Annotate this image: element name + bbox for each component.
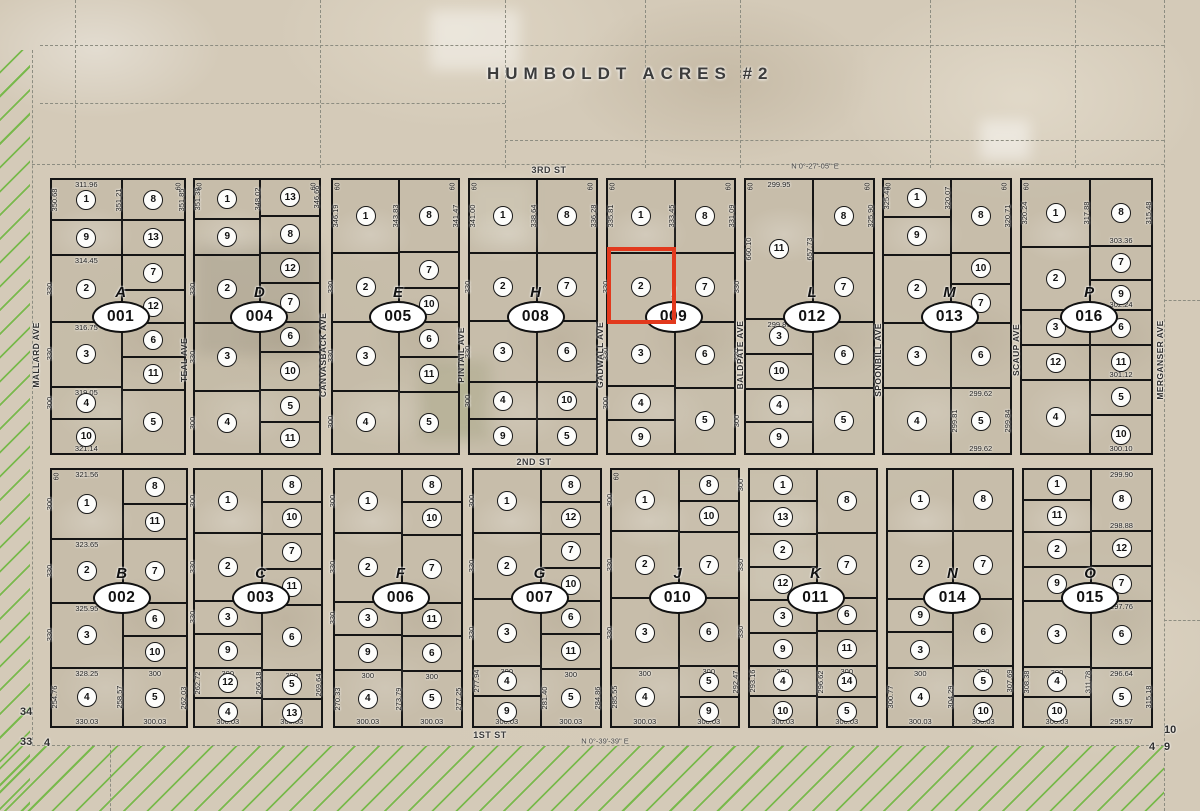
lot-J4[interactable]: 4300300.03285.55 <box>612 667 678 727</box>
dimension-label: 346.19 <box>331 205 340 228</box>
dimension-label: 320.71 <box>1003 204 1012 227</box>
lot-C13[interactable]: 13300.03 <box>263 698 321 726</box>
lot-number-badge: 1 <box>217 189 237 209</box>
dimension-label: 299.84 <box>1003 410 1012 433</box>
avenue-label-canvasback: CANVASBACK AVE <box>318 313 328 397</box>
lot-number-badge: 6 <box>280 327 300 347</box>
dimension-label: 660.10 <box>744 237 753 260</box>
dimension-label: 298.88 <box>1110 521 1133 530</box>
block-letter-P: P <box>1084 284 1094 301</box>
lot-number-badge: 8 <box>1111 203 1131 223</box>
dimension-label: 330 <box>188 611 197 624</box>
lot-number-badge: 9 <box>699 702 719 722</box>
lot-F9[interactable]: 9 <box>335 634 401 669</box>
lot-O12[interactable]: 12 <box>1092 530 1151 565</box>
parcel-line <box>740 0 741 168</box>
block-id-oval-004: 004 <box>230 301 288 333</box>
lot-O2[interactable]: 2 <box>1024 531 1090 566</box>
block-letter-L: L <box>807 284 816 301</box>
dimension-label: 295.57 <box>1110 717 1133 726</box>
lot-number-badge: 4 <box>356 412 376 432</box>
lot-H8[interactable]: 8336.28 <box>538 180 596 252</box>
dimension-label: 299.62 <box>969 389 992 398</box>
street-width-label: 60 <box>613 473 620 481</box>
block-letter-K: K <box>810 565 821 582</box>
lot-B8[interactable]: 8 <box>124 470 186 503</box>
dimension-label: 300 <box>326 416 335 429</box>
lot-B5[interactable]: 5300300.03262.03 <box>124 667 186 726</box>
dimension-label: 350.68 <box>50 188 59 211</box>
lot-A7[interactable]: 7 <box>123 254 184 289</box>
section-corner-number: 34 <box>20 706 32 718</box>
lot-M4[interactable]: 4 <box>884 387 950 453</box>
lot-K9[interactable]: 9 <box>750 632 816 665</box>
dimension-label: 273.79 <box>394 687 403 710</box>
parcel-line <box>40 103 505 104</box>
lot-number-badge: 2 <box>217 279 237 299</box>
lot-D3[interactable]: 3330 <box>195 322 259 390</box>
lot-number-badge: 1 <box>77 494 97 514</box>
lot-L11[interactable]: 11299.95660.10657.73 <box>746 180 812 318</box>
lot-H1[interactable]: 1341.00338.64 <box>470 180 536 252</box>
block-id-oval-003: 003 <box>232 582 290 614</box>
lot-E5[interactable]: 5 <box>400 391 458 453</box>
lot-number-badge: 1 <box>773 475 793 495</box>
lot-P2[interactable]: 2 <box>1022 246 1089 309</box>
lot-number-badge: 3 <box>907 346 927 366</box>
lot-C10[interactable]: 10 <box>263 501 321 534</box>
street-line-3rd <box>32 164 1164 165</box>
parcel-line <box>1164 620 1200 621</box>
lot-number-badge: 3 <box>358 608 378 628</box>
dimension-label: 330 <box>328 561 337 574</box>
lot-D4[interactable]: 4300 <box>195 390 259 453</box>
lot-O5[interactable]: 5296.64295.57315.18 <box>1092 667 1151 726</box>
lot-number-badge: 11 <box>1111 352 1131 372</box>
lot-number-badge: 10 <box>1047 702 1067 722</box>
lot-number-badge: 7 <box>557 277 577 297</box>
lot-C4[interactable]: 4300.03 <box>195 697 261 726</box>
lot-number-badge: 6 <box>834 345 854 365</box>
dimension-label: 343.83 <box>391 205 400 228</box>
lot-G12[interactable]: 12 <box>542 501 600 534</box>
lot-P4[interactable]: 4 <box>1022 379 1089 453</box>
dimension-label: 341.00 <box>468 204 477 227</box>
lot-O10[interactable]: 10300.03 <box>1024 696 1090 726</box>
lot-number-badge: 6 <box>971 346 991 366</box>
parcel-line <box>1075 0 1076 168</box>
lot-number-badge: 1 <box>635 490 655 510</box>
street-width-label: 60 <box>726 183 733 191</box>
block-id-oval-005: 005 <box>369 301 427 333</box>
lot-number-badge: 2 <box>497 556 517 576</box>
parcel-line <box>320 0 321 168</box>
lot-number-badge: 6 <box>282 627 302 647</box>
lot-number-badge: 13 <box>280 187 300 207</box>
lot-D1[interactable]: 1351.38348.02 <box>195 180 259 218</box>
lot-K1[interactable]: 1 <box>750 470 816 500</box>
lot-L9[interactable]: 9 <box>746 421 812 453</box>
street-width-label: 60 <box>53 473 60 481</box>
lot-number-badge: 6 <box>695 345 715 365</box>
block-id-oval-015: 015 <box>1061 582 1119 614</box>
lot-B11[interactable]: 11 <box>124 503 186 538</box>
dimension-label: 330 <box>736 559 745 572</box>
block-id-oval-013: 013 <box>921 301 979 333</box>
lot-D8[interactable]: 8 <box>261 215 319 252</box>
lot-A1[interactable]: 1311.96350.68351.21 <box>52 180 121 219</box>
lot-A4[interactable]: 4319.05300 <box>52 386 121 418</box>
dimension-label: 311.78 <box>1083 671 1092 693</box>
lot-C5[interactable]: 5300269.64 <box>263 669 321 698</box>
lot-number-badge: 6 <box>1112 625 1132 645</box>
lot-number-badge: 3 <box>635 623 655 643</box>
lot-F8[interactable]: 8 <box>403 470 461 501</box>
lot-A5[interactable]: 5 <box>123 389 184 453</box>
lot-number-badge: 4 <box>76 393 96 413</box>
lot-F10[interactable]: 10 <box>403 501 461 534</box>
lot-I4[interactable]: 4300 <box>608 385 674 419</box>
lot-G5[interactable]: 5300300.03281.40284.86 <box>542 668 600 726</box>
lot-number-badge: 9 <box>76 228 96 248</box>
dimension-label: 300.03 <box>356 717 379 726</box>
dimension-label: 330 <box>45 564 54 577</box>
dimension-label: 266.18 <box>254 671 263 694</box>
dimension-label: 320.24 <box>1020 202 1029 225</box>
lot-number-badge: 3 <box>631 344 651 364</box>
lot-I9[interactable]: 9 <box>608 419 674 453</box>
lot-P8[interactable]: 8303.36315.48 <box>1091 180 1151 245</box>
dimension-label: 300.77 <box>886 686 895 709</box>
dimension-label: 300 <box>463 394 472 407</box>
lot-number-badge: 11 <box>419 364 439 384</box>
lot-K4[interactable]: 4300293.16 <box>750 665 816 695</box>
lot-F4[interactable]: 4300300.03270.33273.79 <box>335 669 401 726</box>
block-letter-A: A <box>115 284 126 301</box>
lot-I1[interactable]: 1335.81333.45 <box>608 180 674 252</box>
lot-C7[interactable]: 7 <box>263 533 321 568</box>
lot-A10[interactable]: 10321.14 <box>52 418 121 453</box>
lot-N10[interactable]: 10300.03 <box>954 695 1012 726</box>
dimension-label: 300 <box>601 397 610 410</box>
lot-number-badge: 3 <box>773 607 793 627</box>
lot-number-badge: 10 <box>282 508 302 528</box>
lot-number-badge: 11 <box>143 364 163 384</box>
lot-A11[interactable]: 11 <box>123 356 184 389</box>
lot-number-badge: 6 <box>143 330 163 350</box>
lot-number-badge: 4 <box>773 671 793 691</box>
lot-L4[interactable]: 4 <box>746 388 812 420</box>
lot-number-badge: 11 <box>1047 506 1067 526</box>
lot-M9[interactable]: 9 <box>884 216 950 254</box>
lot-E11[interactable]: 11 <box>400 356 458 391</box>
block-K-011: 113212394300293.1610300.038761114300296.… <box>748 468 878 728</box>
dimension-label: 300 <box>736 478 745 491</box>
lot-number-badge: 9 <box>1111 285 1131 305</box>
lot-L10[interactable]: 10 <box>746 353 812 388</box>
lot-number-badge: 5 <box>837 702 857 722</box>
lot-number-badge: 5 <box>280 396 300 416</box>
dimension-label: 304.29 <box>945 686 954 709</box>
lot-number-badge: 4 <box>497 671 517 691</box>
dimension-label: 300.03 <box>143 717 166 726</box>
lot-C6[interactable]: 6 <box>263 604 321 670</box>
lot-G7[interactable]: 7 <box>542 533 600 567</box>
dimension-label: 320.07 <box>943 186 952 209</box>
lot-D12[interactable]: 12 <box>261 252 319 282</box>
lot-A13[interactable]: 13 <box>123 219 184 254</box>
lot-number-badge: 12 <box>218 673 238 693</box>
lot-A9[interactable]: 9 <box>52 219 121 254</box>
lot-N5[interactable]: 5300307.69 <box>954 665 1012 696</box>
section-corner-number: 10 <box>1164 724 1176 736</box>
dimension-label: 300 <box>564 670 577 679</box>
lot-number-badge: 4 <box>217 413 237 433</box>
dimension-label: 299.90 <box>1110 470 1133 479</box>
block-letter-J: J <box>673 565 681 582</box>
lot-number-badge: 6 <box>699 622 719 642</box>
street-width-label: 60 <box>334 183 341 191</box>
lot-M6[interactable]: 6 <box>952 322 1010 388</box>
avenue-label-spoonbill: SPOONBILL AVE <box>873 323 883 397</box>
lot-number-badge: 8 <box>561 475 581 495</box>
lot-K11[interactable]: 11 <box>818 630 876 665</box>
lot-number-badge: 1 <box>218 491 238 511</box>
lot-E7[interactable]: 7 <box>400 251 458 287</box>
lot-G1[interactable]: 1300 <box>474 470 540 532</box>
dimension-label: 315.18 <box>1144 686 1153 709</box>
lot-L5[interactable]: 5 <box>814 387 873 453</box>
dimension-label: 330 <box>45 348 54 361</box>
lot-N4[interactable]: 4300300.03300.77304.29 <box>888 667 952 726</box>
avenue-label-pintail: PINTAIL AVE <box>456 327 466 383</box>
lot-L8[interactable]: 8325.90 <box>814 180 873 252</box>
lot-number-badge: 3 <box>769 326 789 346</box>
lot-C12[interactable]: 12300262.72266.18 <box>195 667 261 697</box>
parcel-line <box>505 140 1164 141</box>
lot-P11[interactable]: 11301.12 <box>1091 344 1151 379</box>
lot-number-badge: 2 <box>635 555 655 575</box>
lot-P5[interactable]: 5 <box>1091 379 1151 415</box>
dimension-label: 351.38 <box>193 188 202 211</box>
lot-K14[interactable]: 14300296.62 <box>818 665 876 695</box>
dimension-label: 300 <box>45 497 54 510</box>
lot-G8[interactable]: 8 <box>542 470 600 501</box>
lot-J5[interactable]: 5300292.47 <box>680 665 738 695</box>
dimension-label: 321.56 <box>75 470 98 479</box>
lot-P7[interactable]: 7 <box>1091 245 1151 278</box>
lot-C9[interactable]: 9 <box>195 633 261 667</box>
lot-D11[interactable]: 11 <box>261 421 319 453</box>
dimension-label: 300 <box>425 672 438 681</box>
parcel-line <box>1164 300 1200 301</box>
lot-D10[interactable]: 10 <box>261 351 319 389</box>
lot-H4[interactable]: 4300 <box>470 381 536 417</box>
dimension-label: 300.03 <box>909 717 932 726</box>
lot-number-badge: 5 <box>695 411 715 431</box>
lot-number-badge: 5 <box>973 671 993 691</box>
lot-number-badge: 8 <box>973 490 993 510</box>
lot-J1[interactable]: 1300 <box>612 470 678 530</box>
lot-M1[interactable]: 1325.43320.07 <box>884 180 950 216</box>
street-width-label: 60 <box>471 183 478 191</box>
lot-number-badge: 10 <box>769 361 789 381</box>
lot-number-badge: 8 <box>557 206 577 226</box>
lot-number-badge: 5 <box>143 412 163 432</box>
block-id-oval-011: 011 <box>787 582 845 614</box>
dimension-label: 269.64 <box>314 673 323 696</box>
dimension-label: 296.64 <box>1110 669 1133 678</box>
lot-B10[interactable]: 10 <box>124 635 186 668</box>
lot-P12[interactable]: 12 <box>1022 344 1089 379</box>
lot-G4[interactable]: 4300277.94 <box>474 665 540 696</box>
dimension-label: 325.95 <box>75 604 98 613</box>
boundary-hatch-bottom <box>0 746 1164 811</box>
lot-P10[interactable]: 10300.10 <box>1091 414 1151 453</box>
block-letter-E: E <box>393 284 403 301</box>
lot-number-badge: 8 <box>834 206 854 226</box>
lot-E1[interactable]: 1346.19343.83 <box>333 180 398 252</box>
street-width-label: 60 <box>1002 183 1009 191</box>
lot-J9[interactable]: 9300.03 <box>680 696 738 726</box>
dimension-label: 300 <box>188 494 197 507</box>
lot-K8[interactable]: 8 <box>818 470 876 532</box>
lot-number-badge: 9 <box>497 702 517 722</box>
lot-K5[interactable]: 5300.03 <box>818 696 876 726</box>
dimension-label: 330 <box>605 558 614 571</box>
lot-I8[interactable]: 8331.09 <box>676 180 734 252</box>
lot-B1[interactable]: 1321.56300 <box>52 470 122 538</box>
lot-K13[interactable]: 13 <box>750 500 816 532</box>
lot-number-badge: 7 <box>422 559 442 579</box>
dimension-label: 285.55 <box>610 686 619 709</box>
block-letter-N: N <box>947 565 958 582</box>
lot-number-badge: 10 <box>973 702 993 722</box>
lot-J8[interactable]: 8300 <box>680 470 738 500</box>
lot-P1[interactable]: 1320.24317.88 <box>1022 180 1089 246</box>
lot-O8[interactable]: 8299.90298.88 <box>1092 470 1151 530</box>
ground-patch <box>430 10 520 70</box>
lot-K10[interactable]: 10300.03 <box>750 695 816 726</box>
lot-E8[interactable]: 8341.47 <box>400 180 458 251</box>
lot-M8[interactable]: 8320.71 <box>952 180 1010 252</box>
lot-E4[interactable]: 4300 <box>333 390 398 453</box>
lot-number-badge: 5 <box>561 688 581 708</box>
section-line <box>110 745 111 811</box>
lot-number-badge: 11 <box>769 239 789 259</box>
parcel-line <box>75 0 76 168</box>
lot-N8[interactable]: 8 <box>954 470 1012 530</box>
lot-number-badge: 7 <box>561 541 581 561</box>
dimension-label: 254.76 <box>50 686 59 709</box>
parcel-line <box>930 0 931 168</box>
lot-number-badge: 2 <box>77 561 97 581</box>
block-id-oval-001: 001 <box>92 301 150 333</box>
lot-number-badge: 7 <box>834 277 854 297</box>
lot-O11[interactable]: 11 <box>1024 499 1090 530</box>
lot-number-badge: 2 <box>218 557 238 577</box>
lot-D5[interactable]: 5 <box>261 389 319 421</box>
lot-number-badge: 5 <box>971 411 991 431</box>
dimension-label: 300 <box>328 495 337 508</box>
lot-number-badge: 9 <box>493 426 513 446</box>
block-N-014: 12934300300.03300.77304.298765300307.691… <box>886 468 1014 728</box>
lot-number-badge: 9 <box>910 606 930 626</box>
block-J-010: 601300233033304300300.03285.558300107330… <box>610 468 740 728</box>
lot-G9[interactable]: 9300.03 <box>474 695 540 726</box>
lot-H9[interactable]: 9 <box>470 418 536 453</box>
lot-F6[interactable]: 6 <box>403 635 461 670</box>
dimension-label: 331.09 <box>727 205 736 228</box>
dimension-label: 330 <box>328 612 337 625</box>
street-label-2nd: 2ND ST <box>516 457 551 467</box>
lot-J10[interactable]: 10 <box>680 500 738 532</box>
lot-I5[interactable]: 5300 <box>676 387 734 453</box>
lot-H10[interactable]: 10 <box>538 381 596 417</box>
lot-number-badge: 11 <box>561 641 581 661</box>
parcel-line <box>505 0 506 168</box>
lot-N3[interactable]: 3 <box>888 631 952 666</box>
avenue-label-gadwall: GADWALL AVE <box>595 322 605 388</box>
dimension-label: 300 <box>149 669 162 678</box>
block-id-oval-002: 002 <box>93 582 151 614</box>
lot-number-badge: 1 <box>356 206 376 226</box>
block-id-oval-010: 010 <box>649 582 707 614</box>
lot-number-badge: 10 <box>1111 425 1131 445</box>
street-width-label: 60 <box>450 183 457 191</box>
lot-number-badge: 12 <box>1112 538 1132 558</box>
block-M-013: 60601325.43320.0792348320.7110765299.622… <box>882 178 1012 455</box>
block-letter-H: H <box>530 284 541 301</box>
lot-number-badge: 6 <box>557 342 577 362</box>
lot-F1[interactable]: 1300 <box>335 470 401 532</box>
block-F-006: 13002330333094300300.03270.33273.7981071… <box>333 468 463 728</box>
lot-M10[interactable]: 10 <box>952 252 1010 283</box>
lot-C1[interactable]: 1300 <box>195 470 261 532</box>
lot-F5[interactable]: 5300300.03277.25 <box>403 670 461 726</box>
lot-H5[interactable]: 5 <box>538 418 596 453</box>
lot-number-badge: 6 <box>837 605 857 625</box>
dimension-label: 323.65 <box>75 540 98 549</box>
lot-number-badge: 8 <box>419 206 439 226</box>
dimension-label: 296.62 <box>815 670 824 693</box>
lot-number-badge: 1 <box>631 206 651 226</box>
lot-number-badge: 6 <box>561 608 581 628</box>
dimension-label: 303.36 <box>1110 236 1133 245</box>
lot-number-badge: 2 <box>773 540 793 560</box>
lot-O4[interactable]: 4300308.38311.78 <box>1024 666 1090 696</box>
lot-M5[interactable]: 5299.62299.62299.81299.84 <box>952 387 1010 453</box>
lot-number-badge: 3 <box>493 342 513 362</box>
dimension-label: 330.03 <box>75 717 98 726</box>
lot-N1[interactable]: 1 <box>888 470 952 530</box>
lot-K2[interactable]: 2 <box>750 533 816 566</box>
lot-B4[interactable]: 4328.25330.03254.76258.57 <box>52 667 122 727</box>
lot-G11[interactable]: 11 <box>542 633 600 668</box>
lot-number-badge: 2 <box>358 557 378 577</box>
lot-number-badge: 6 <box>145 609 165 629</box>
parcel-line <box>40 45 1164 46</box>
dimension-label: 300 <box>45 397 54 410</box>
avenue-label-teal: TEAL AVE <box>179 338 189 382</box>
lot-O1[interactable]: 1 <box>1024 470 1090 499</box>
lot-C8[interactable]: 8 <box>263 470 321 501</box>
block-L-012: 606011299.95660.10657.733299.8710498325.… <box>744 178 875 455</box>
lot-number-badge: 5 <box>282 675 302 695</box>
block-letter-D: D <box>254 284 265 301</box>
lot-D9[interactable]: 9 <box>195 218 259 253</box>
lot-number-badge: 11 <box>837 639 857 659</box>
